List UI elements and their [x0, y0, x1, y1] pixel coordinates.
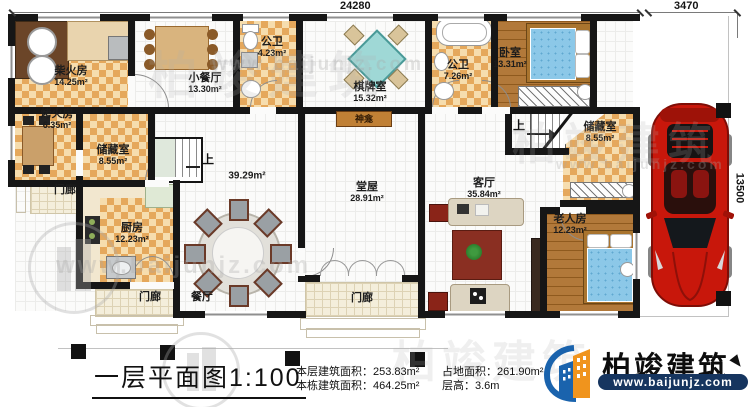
- room-label-kaohuofang: 烤火房 6.35m²: [41, 108, 74, 130]
- stairs-arrow: [186, 166, 200, 168]
- wall: [560, 200, 640, 207]
- stat-land-area: 占地面积：261.90m²: [442, 366, 543, 380]
- room-label-gongwei-top: 公卫 4.23m²: [258, 36, 287, 58]
- stat-label: 层高：: [442, 380, 475, 392]
- room-label-gongwei-right: 公卫 7.26m²: [444, 59, 473, 81]
- sofa-icon: [448, 198, 524, 226]
- floor-plan-page: 神龛: [0, 0, 750, 407]
- room-label-chaihuofang: 柴火房 14.25m²: [54, 65, 88, 87]
- shrine-label: 神龛: [355, 114, 373, 124]
- door-opening: [128, 76, 135, 106]
- window: [205, 311, 267, 318]
- shrine-bar: 神龛: [336, 111, 392, 127]
- stat-floor-height: 层高：3.6m: [442, 380, 499, 394]
- chair-icon: [270, 244, 292, 264]
- chair-icon: [144, 44, 155, 55]
- room-label-hall-area: 39.29m²: [228, 170, 265, 181]
- window: [438, 14, 484, 21]
- porch-label-left: 门廊: [54, 184, 76, 196]
- column-marker: [410, 352, 425, 367]
- porch-bottom-left: [95, 289, 175, 317]
- room-label-xiaocanting: 小餐厅 13.30m²: [188, 72, 222, 94]
- stat-floor-area: 本层建筑面积：253.83m²: [296, 366, 419, 380]
- wall: [128, 14, 135, 78]
- bathtub-basin: [442, 23, 487, 42]
- door-opening: [76, 150, 83, 176]
- sofa-pillow: [457, 204, 469, 214]
- stairs-arrow: [527, 133, 551, 135]
- stairs-arrow-head: [549, 129, 556, 139]
- dimension-top-width: 24280: [340, 0, 371, 12]
- porch-label-center: 门廊: [351, 292, 373, 304]
- steps-bottom-left-2: [96, 324, 178, 334]
- window: [8, 126, 15, 160]
- stat-label: 本层建筑面积：: [296, 366, 373, 378]
- sink-basin: [112, 261, 131, 275]
- room-label-laorenfang: 老人房 12.23m²: [553, 213, 587, 235]
- wall: [540, 207, 547, 318]
- window: [560, 311, 618, 318]
- dimension-drop-line: [737, 12, 738, 38]
- chair-icon: [144, 29, 155, 40]
- bathtub-icon: [436, 18, 492, 46]
- room-label-tangwu: 堂屋 28.91m²: [350, 181, 384, 203]
- chair-icon: [207, 29, 218, 40]
- door-opening: [432, 107, 458, 114]
- stat-value: 464.25m²: [373, 380, 419, 392]
- room-label-keting: 客厅 35.84m²: [467, 177, 501, 199]
- cup: [473, 292, 477, 296]
- washbasin-icon: [241, 80, 261, 98]
- door-opening: [482, 107, 510, 114]
- window: [633, 233, 640, 279]
- door-opening: [145, 180, 169, 187]
- kitchen-sink-icon: [106, 256, 136, 279]
- fireplace-icon: [428, 292, 448, 311]
- window: [150, 14, 212, 21]
- dimension-right-height: 13500: [733, 173, 745, 204]
- window: [507, 14, 581, 21]
- washing-machine-icon: [241, 52, 258, 68]
- car-top-view: [646, 100, 734, 310]
- stair-treads: [175, 139, 197, 177]
- sofa-pillow: [475, 204, 489, 216]
- chair-icon: [184, 244, 206, 264]
- chair-icon: [207, 59, 218, 70]
- page-title: 一层平面图1:100: [92, 358, 306, 399]
- door-opening: [298, 248, 305, 276]
- chair-icon: [23, 165, 34, 174]
- stairs-left: [153, 137, 203, 183]
- room-label-woshi: 卧室 13.31m²: [493, 47, 527, 69]
- cooktop-icon: [85, 216, 100, 244]
- chair-icon: [23, 116, 34, 125]
- carport-bottom-line: [640, 316, 729, 317]
- stat-value: 3.6m: [475, 380, 499, 392]
- mouse-cursor: [729, 354, 744, 370]
- dimension-line-carport: [648, 12, 738, 13]
- room-label-chufang: 厨房 12.23m²: [115, 222, 149, 244]
- pillow: [575, 30, 590, 54]
- wall: [298, 275, 320, 282]
- bed-icon: [526, 23, 592, 83]
- mattress: [530, 28, 576, 80]
- door-opening: [130, 282, 174, 289]
- chair-icon: [144, 59, 155, 70]
- window: [243, 14, 289, 21]
- porch-label-bottom-left: 门廊: [139, 291, 161, 303]
- stat-label: 占地面积：: [442, 366, 497, 378]
- wall: [148, 107, 155, 183]
- brand-logo-icon: [542, 340, 602, 402]
- title-text: 一层平面图: [94, 364, 229, 392]
- column-marker: [716, 291, 731, 306]
- stair-landing: [155, 139, 175, 177]
- window: [8, 46, 15, 78]
- side-table-icon: [470, 288, 486, 304]
- dining-table-small-icon: [155, 26, 209, 70]
- stove-pot-icon: [27, 27, 57, 57]
- room-label-canting: 餐厅: [191, 291, 213, 303]
- pillow: [610, 234, 632, 248]
- window: [445, 311, 505, 318]
- washbasin-icon: [434, 82, 454, 100]
- steps-left: [16, 184, 26, 213]
- wall: [233, 14, 240, 114]
- stat-label: 本栋建筑面积：: [296, 380, 373, 392]
- column-marker: [716, 103, 731, 118]
- kitchen-counter-green: [145, 184, 175, 208]
- chair-icon: [229, 199, 249, 221]
- column-marker: [71, 344, 86, 359]
- title-scale: 1:100: [229, 364, 302, 392]
- room-label-chucangshi-left: 储藏室 8.55m²: [97, 144, 130, 166]
- stairs-right: [530, 112, 566, 152]
- terrace-edge-line: [58, 348, 448, 349]
- stairs-up-label-right: 上: [513, 119, 525, 132]
- fire-table-icon: [22, 126, 54, 166]
- chair-icon: [207, 44, 218, 55]
- wall: [173, 180, 180, 318]
- dimension-carport-width: 3470: [674, 0, 698, 12]
- cup: [479, 296, 483, 300]
- dimension-line-top: [12, 12, 640, 13]
- pillow: [575, 54, 590, 78]
- wall: [296, 14, 303, 114]
- chair-icon: [229, 285, 249, 307]
- burner: [89, 233, 95, 239]
- stat-building-area: 本栋建筑面积：464.25m²: [296, 380, 419, 394]
- stat-value: 261.90m²: [497, 366, 543, 378]
- door-opening: [250, 107, 276, 114]
- room-label-chucangshi-right: 储藏室 8.55m²: [584, 121, 617, 143]
- wall: [418, 107, 425, 318]
- wall: [8, 14, 15, 187]
- wall: [76, 180, 83, 289]
- plant-icon: [466, 244, 482, 260]
- room-label-qipaishi: 棋牌室 15.32m²: [353, 81, 387, 103]
- stove-pot-icon: [27, 55, 57, 85]
- wall: [505, 148, 569, 155]
- stat-value: 253.83m²: [373, 366, 419, 378]
- wall: [425, 14, 432, 114]
- table-center: [212, 227, 264, 279]
- window: [327, 14, 393, 21]
- window: [38, 14, 100, 21]
- burner: [89, 219, 95, 225]
- brand-url: www.baijunjz.com: [598, 374, 748, 390]
- steps-center-2: [306, 328, 420, 338]
- wall: [8, 107, 640, 114]
- pillow: [587, 234, 609, 248]
- wall: [590, 14, 597, 114]
- stairs-up-label-left: 上: [202, 153, 214, 166]
- cabinet-icon: [429, 204, 449, 222]
- toilet-icon: [243, 31, 258, 50]
- chair-icon: [39, 165, 50, 174]
